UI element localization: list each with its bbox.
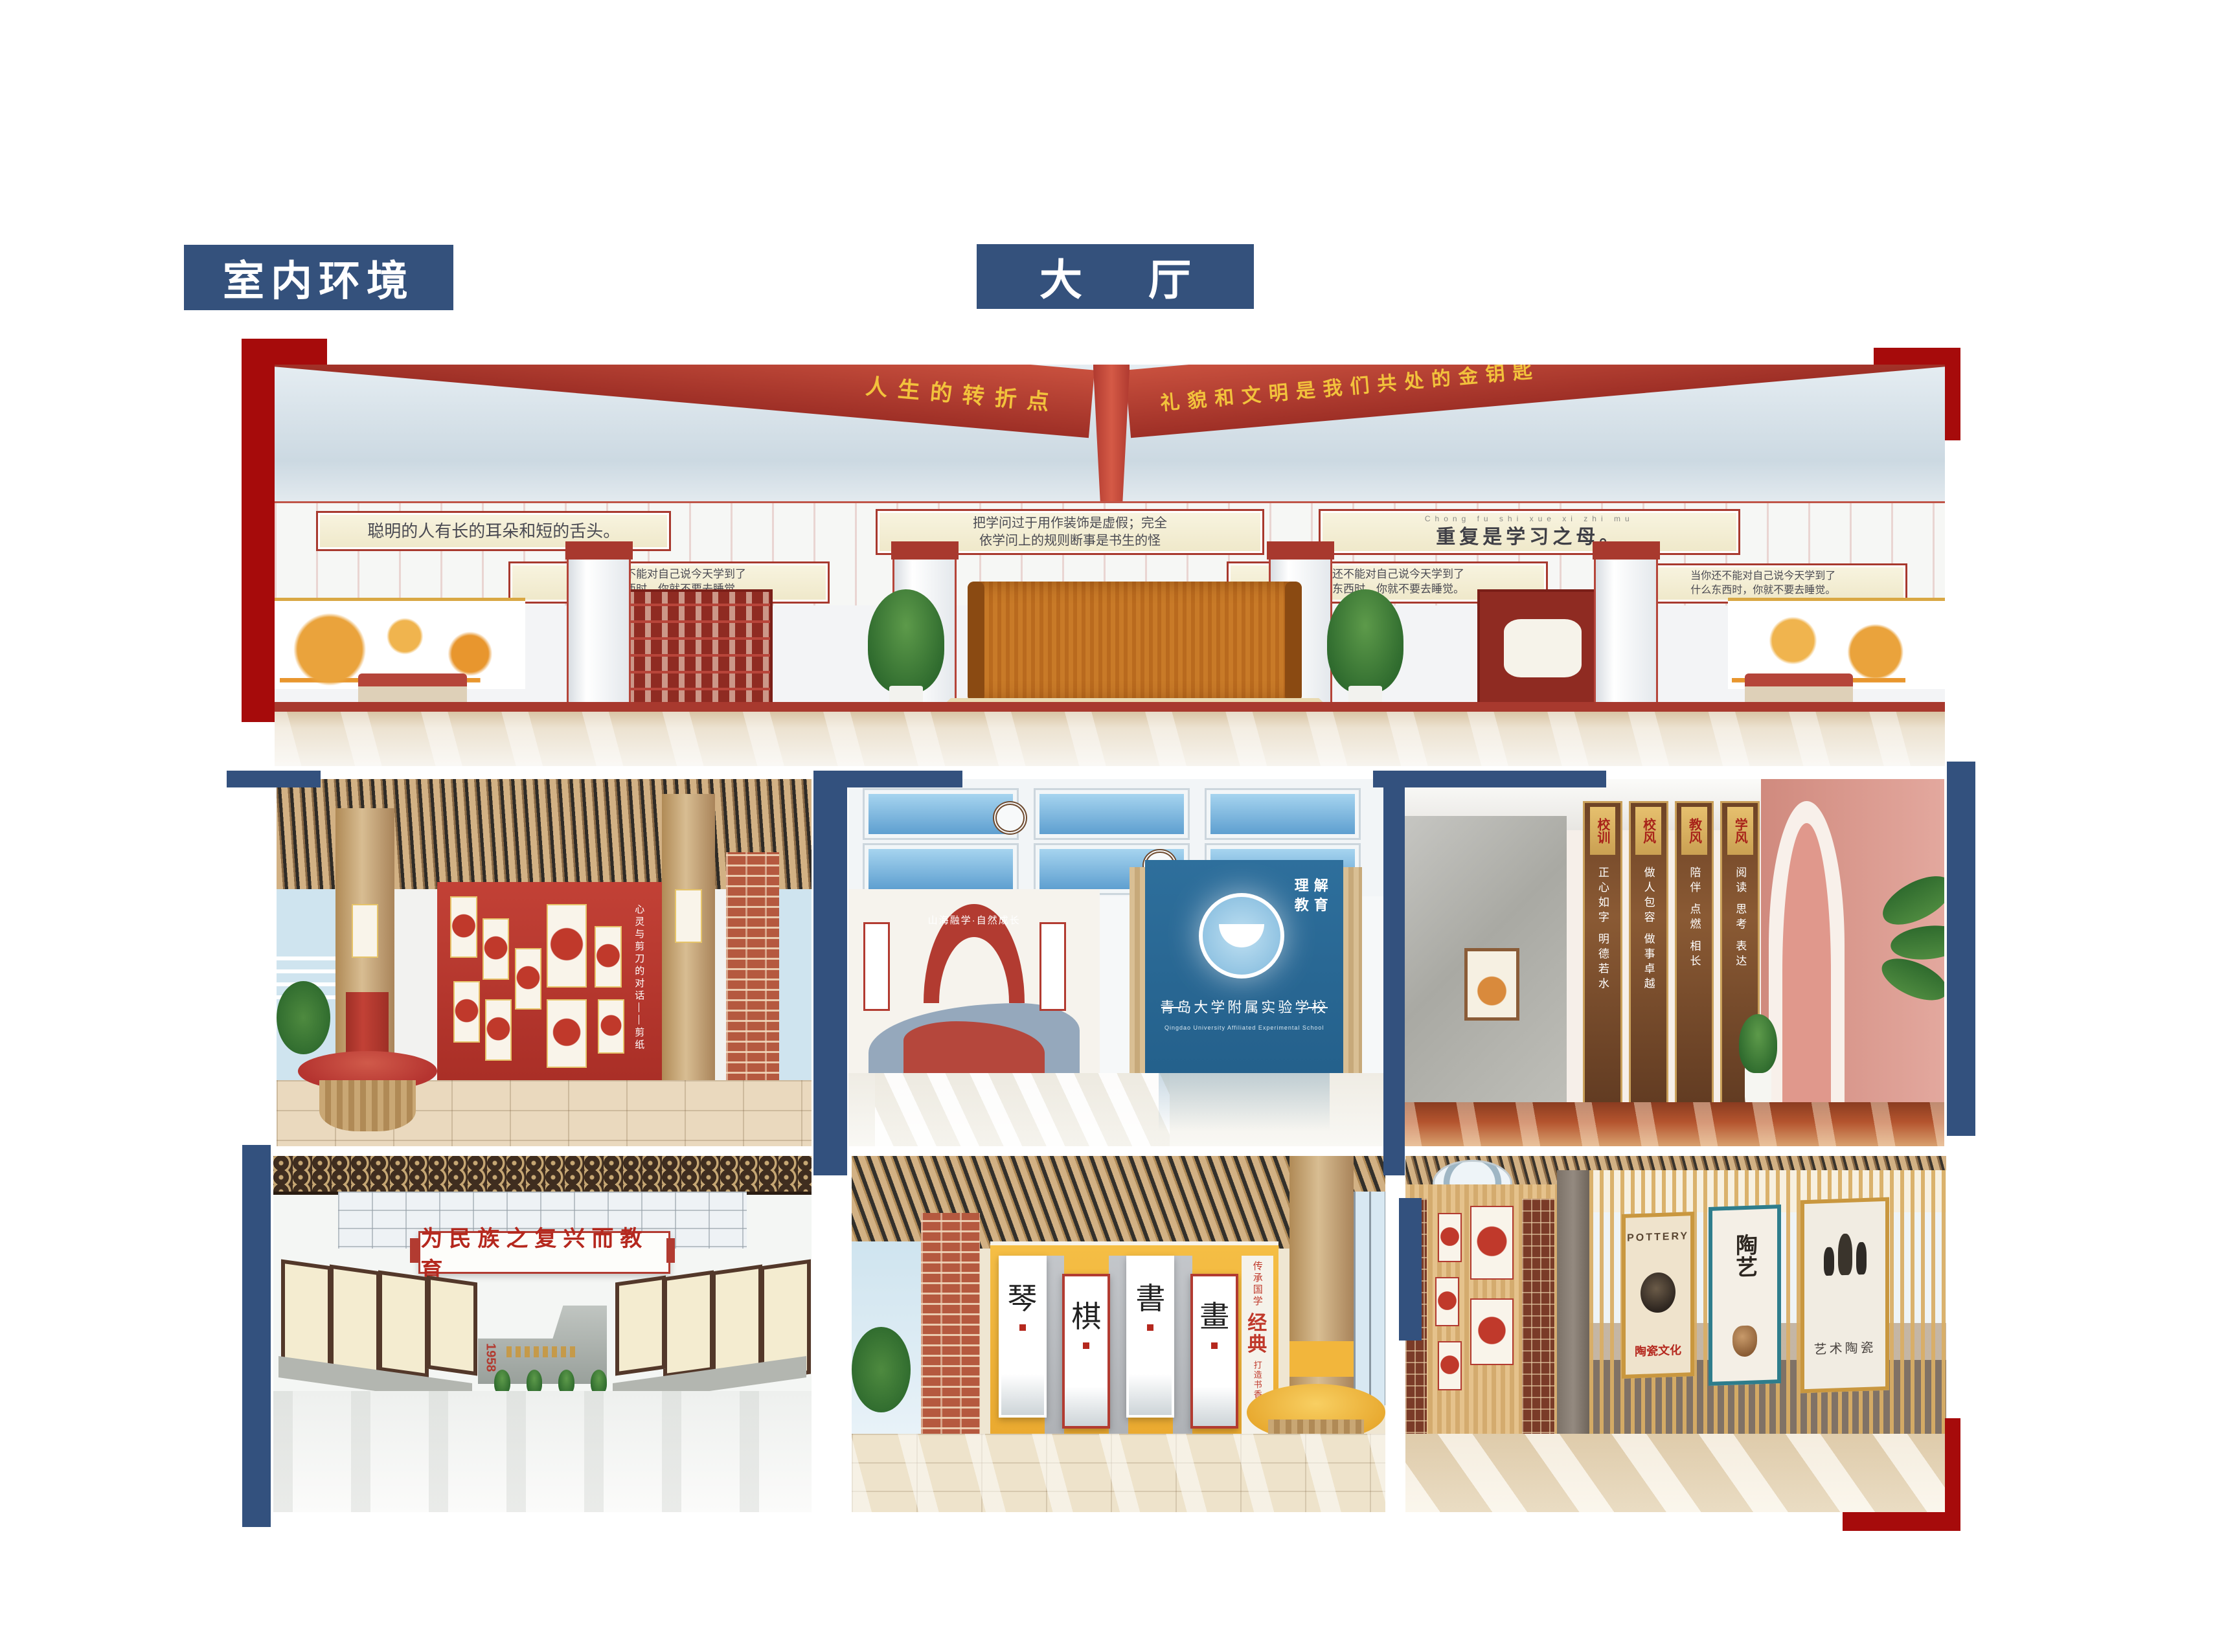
display-board-right <box>615 1275 666 1375</box>
hall-label-text: 大 厅 <box>1028 245 1203 308</box>
lattice-frame-right <box>1477 589 1607 707</box>
ceiling-lamp <box>993 801 1027 835</box>
papercut-caption: 心灵与剪刀的对话——剪纸 <box>632 904 646 1065</box>
poster-taoyi: 陶艺 <box>1709 1205 1781 1386</box>
school-name-en: Qingdao University Affiliated Experiment… <box>1145 1024 1343 1031</box>
poster-art-ceramics: 艺术陶瓷 <box>1800 1197 1889 1394</box>
bracket-red-topright-vertical <box>1945 348 1960 440</box>
pillar-plaque: 校训 <box>1590 807 1616 855</box>
display-board-right <box>712 1265 762 1379</box>
column-poster <box>675 889 701 943</box>
bracket-red-topleft-horizontal <box>242 339 327 365</box>
papercut-caption-text: 心灵与剪刀的对话——剪纸 <box>633 904 644 1052</box>
tree-blob <box>277 981 330 1054</box>
poster-pot-glyph <box>1732 1326 1757 1357</box>
display-board-left <box>330 1265 380 1379</box>
bracket-red-bottomright-horizontal <box>1843 1512 1960 1531</box>
banner-smart-text: 聪明的人有长的耳朵和短的舌头。 <box>367 520 620 543</box>
photo-logo-hall: 山海融学·自然成长 理解教育 青岛大学附属实验学校 Qingdao Univer… <box>848 779 1383 1146</box>
wood-scroll-wall <box>968 582 1302 702</box>
grey-panel <box>1173 1256 1192 1441</box>
hall-column-4 <box>1594 541 1658 710</box>
photo-motto-corridor: 校训 正心如字 明德若水 校风 做人包容 做事卓越 教风 陪伴 点燃 相长 学风… <box>1405 779 1944 1146</box>
lattice-panel <box>1522 1199 1554 1448</box>
scroll-char: 畫 <box>1199 1293 1229 1336</box>
scroll-ink-footer <box>1193 1386 1236 1425</box>
vase-glyph <box>1823 1247 1834 1276</box>
column-cap <box>565 541 633 560</box>
arch-inner <box>1782 823 1831 1146</box>
pillar-body: 陪伴 点燃 相长 <box>1686 866 1702 969</box>
pillar-body: 阅读 思考 表达 <box>1732 866 1748 969</box>
plant-right <box>1327 589 1404 694</box>
vase-glyph <box>1856 1242 1866 1275</box>
floor-gloss <box>1405 1102 1944 1146</box>
vase-glyph <box>1837 1234 1852 1276</box>
wall-poster <box>1464 948 1519 1021</box>
poster-pottery-title: POTTERY <box>1627 1230 1689 1244</box>
pillar-header: 校风 <box>1639 818 1658 844</box>
wood-trim-right <box>1343 867 1362 1095</box>
banner-repetition: Chong fu shi xue xi zhi mu 重复是学习之母。 <box>1319 509 1740 555</box>
banner-learn-3-line1: 当你还不能对自己说今天学到了 <box>1690 569 1835 583</box>
papercut-frame <box>1438 1213 1462 1262</box>
scroll-shu: 書 <box>1126 1256 1174 1418</box>
motto-pillar-xiaofeng: 校风 做人包容 做事卓越 <box>1629 801 1668 1128</box>
scroll-ink-footer <box>1065 1386 1107 1425</box>
presentation-page: 室内环境 大 厅 人生的转折点 礼貌和文明是我们共处的金钥匙 聪明的人有长的耳朵… <box>0 0 2226 1652</box>
name-rule-left <box>1161 1007 1181 1008</box>
photo-main-hall: 人生的转折点 礼貌和文明是我们共处的金钥匙 聪明的人有长的耳朵和短的舌头。 把学… <box>275 365 1945 766</box>
papercut-poster <box>453 981 480 1043</box>
school-logo <box>1199 893 1284 979</box>
bracket-blue-row3-left-vertical <box>242 1145 271 1527</box>
pillar-plaque: 教风 <box>1681 807 1707 855</box>
school-name-en-text: Qingdao University Affiliated Experiment… <box>1164 1024 1324 1031</box>
pillar-body: 做人包容 做事卓越 <box>1641 866 1657 993</box>
scroll-seal <box>1147 1324 1153 1331</box>
mission-banner-text: 为民族之复兴而教育 <box>420 1221 668 1284</box>
hall-column-1 <box>567 541 631 710</box>
monument-year: 1958 <box>483 1343 498 1372</box>
papercut-poster-large <box>547 904 587 988</box>
skirting <box>275 702 1945 712</box>
motto-pillar-jiaofeng: 教风 陪伴 点燃 相长 <box>1675 801 1714 1128</box>
grey-column <box>1557 1170 1589 1469</box>
grey-panel <box>1045 1256 1064 1441</box>
wood-column-right <box>1289 1156 1354 1420</box>
papercut-frame <box>1438 1341 1462 1390</box>
floor-sun-streaks <box>1405 1434 1946 1512</box>
display-board-left <box>427 1275 477 1375</box>
pillar-plaque: 校风 <box>1635 807 1661 855</box>
ceiling-coffer <box>1036 790 1188 838</box>
window-right <box>1354 1192 1385 1405</box>
section-label-indoor: 室内环境 <box>184 245 453 310</box>
papercut-frame-large <box>1470 1206 1514 1280</box>
pillar-header: 教风 <box>1685 818 1703 844</box>
pillar-body: 正心如字 明德若水 <box>1595 866 1611 993</box>
papercut-poster <box>595 926 621 988</box>
papercut-poster <box>515 948 541 1010</box>
scroll-qi: 棋 <box>1062 1274 1110 1429</box>
floor-reflection <box>275 712 1945 766</box>
papercut-poster <box>485 999 512 1061</box>
floor-window-glare <box>875 1073 1169 1146</box>
banner-bacon-line2: 依学问上的规则断事是书生的怪 <box>979 532 1161 550</box>
mural-couplet-right <box>1039 922 1066 1010</box>
name-rule-right <box>1308 1007 1328 1008</box>
pillar-plaque: 学风 <box>1727 807 1753 855</box>
poster-pottery-sub: 陶瓷文化 <box>1635 1341 1681 1360</box>
photo-guoxue-hall: 琴 棋 書 畫 传承国学 经典 打造书香校园 <box>852 1156 1385 1512</box>
banner-end-cap <box>666 1238 675 1263</box>
scroll-hua: 畫 <box>1190 1274 1238 1429</box>
scroll-roll-left <box>968 582 984 702</box>
tagline-text: 理解教育 <box>1295 877 1334 913</box>
banner-learn-3-line2: 什么东西时，你就不要去睡觉。 <box>1690 583 1835 598</box>
column-cap <box>1267 541 1334 560</box>
section-label-text: 室内环境 <box>223 248 415 308</box>
papercut-poster-large <box>547 999 587 1068</box>
banner-repetition-pinyin: Chong fu shi xue xi zhi mu <box>1425 514 1634 524</box>
pillar-header: 学风 <box>1731 818 1749 844</box>
scroll-char: 琴 <box>1008 1275 1038 1318</box>
column-cap <box>1593 541 1660 560</box>
display-board-right <box>663 1270 714 1377</box>
lattice-window <box>1504 619 1582 677</box>
column-cap <box>891 541 959 560</box>
mission-banner: 为民族之复兴而教育 <box>418 1231 670 1274</box>
tree-blob <box>852 1327 911 1412</box>
floor-blue-reflection <box>1159 1073 1330 1132</box>
papercut-poster <box>450 896 477 958</box>
poster-bowl-glyph <box>1641 1272 1675 1314</box>
slogan-big: 经典 <box>1247 1313 1268 1355</box>
bracket-red-topleft-vertical <box>242 339 275 722</box>
section-label-hall: 大 厅 <box>977 244 1254 309</box>
bench-base <box>319 1080 416 1131</box>
logo-book-glyph <box>1219 924 1264 947</box>
bracket-blue-row2-gap2-vertical <box>1383 779 1405 1175</box>
motto-pillar-xiaoxun: 校训 正心如字 明德若水 <box>1583 801 1622 1128</box>
planter-left <box>358 673 467 706</box>
scroll-qin: 琴 <box>999 1256 1047 1418</box>
tagline-block: 理解教育 <box>1295 876 1334 914</box>
grey-panel <box>1109 1256 1128 1441</box>
ceiling-coffer <box>1207 790 1359 838</box>
column-poster <box>352 904 378 958</box>
scroll-char: 棋 <box>1071 1293 1101 1336</box>
planter-right <box>1745 673 1854 706</box>
bookshelf-cabinet-left <box>626 589 773 707</box>
banner-learn-2-line1: 当你还不能对自己说今天学到了 <box>1310 567 1464 582</box>
scroll-roll-right <box>1285 582 1302 702</box>
school-name-text: 青岛大学附属实验学校 <box>1160 999 1328 1015</box>
floor-reflections <box>273 1391 812 1512</box>
poster-vases-glyph <box>1823 1233 1866 1276</box>
scroll-ink-footer <box>1001 1374 1044 1415</box>
banner-bacon-line1: 把学问过于用作装饰是虚假；完全 <box>973 515 1167 532</box>
logo-wall: 理解教育 青岛大学附属实验学校 Qingdao University Affil… <box>1145 860 1343 1095</box>
floor-sheen <box>852 1434 1385 1512</box>
slogan-top: 传承国学 <box>1251 1261 1264 1307</box>
wood-trim-left <box>1130 867 1146 1095</box>
ceiling-coffer <box>865 845 1017 893</box>
papercut-poster <box>598 999 624 1053</box>
column-yellow-band <box>1289 1341 1354 1377</box>
mural-couplet-left <box>863 922 890 1010</box>
banner-learn-2-line2: 什么东西时，你就不要去睡觉。 <box>1310 582 1464 597</box>
display-board-left <box>378 1270 429 1377</box>
scroll-seal <box>1211 1342 1218 1349</box>
mural-wall: 山海融学·自然成长 <box>848 889 1100 1073</box>
monument-gold-relief <box>506 1346 576 1357</box>
planter-plant <box>1739 1014 1777 1073</box>
scroll-ink-footer <box>1129 1374 1172 1415</box>
bracket-blue-row2-right-vertical <box>1947 762 1975 1136</box>
scroll-char: 書 <box>1135 1275 1165 1318</box>
poster-art-ceramics-text: 艺术陶瓷 <box>1813 1337 1876 1357</box>
plant-left <box>868 589 945 694</box>
bracket-blue-row2-gap2-top <box>1373 771 1606 787</box>
photo-papercut-hall: 心灵与剪刀的对话——剪纸 <box>277 779 812 1146</box>
papercut-poster <box>483 918 509 980</box>
banner-end-cap <box>410 1238 418 1263</box>
bracket-blue-row2-left-stub <box>227 771 321 787</box>
pillar-header: 校训 <box>1593 818 1612 844</box>
scroll-seal <box>1083 1342 1089 1349</box>
bracket-blue-row3-gap2-vertical <box>1399 1198 1422 1341</box>
beam-left-text: 人生的转折点 <box>864 369 1093 420</box>
photo-history-hall: 为民族之复兴而教育 1958 <box>273 1156 812 1512</box>
papercut-frame-large <box>1470 1298 1514 1365</box>
poster-taoyi-text: 陶艺 <box>1729 1233 1760 1278</box>
photo-pottery-corridor: POTTERY 陶瓷文化 陶艺 艺术陶瓷 <box>1405 1156 1946 1512</box>
scroll-seal <box>1019 1324 1026 1331</box>
bracket-blue-row2-gap1-vertical <box>813 779 847 1175</box>
papercut-frame <box>1435 1277 1459 1326</box>
carved-transom <box>273 1156 812 1195</box>
poster-pottery-culture: POTTERY 陶瓷文化 <box>1622 1212 1694 1379</box>
